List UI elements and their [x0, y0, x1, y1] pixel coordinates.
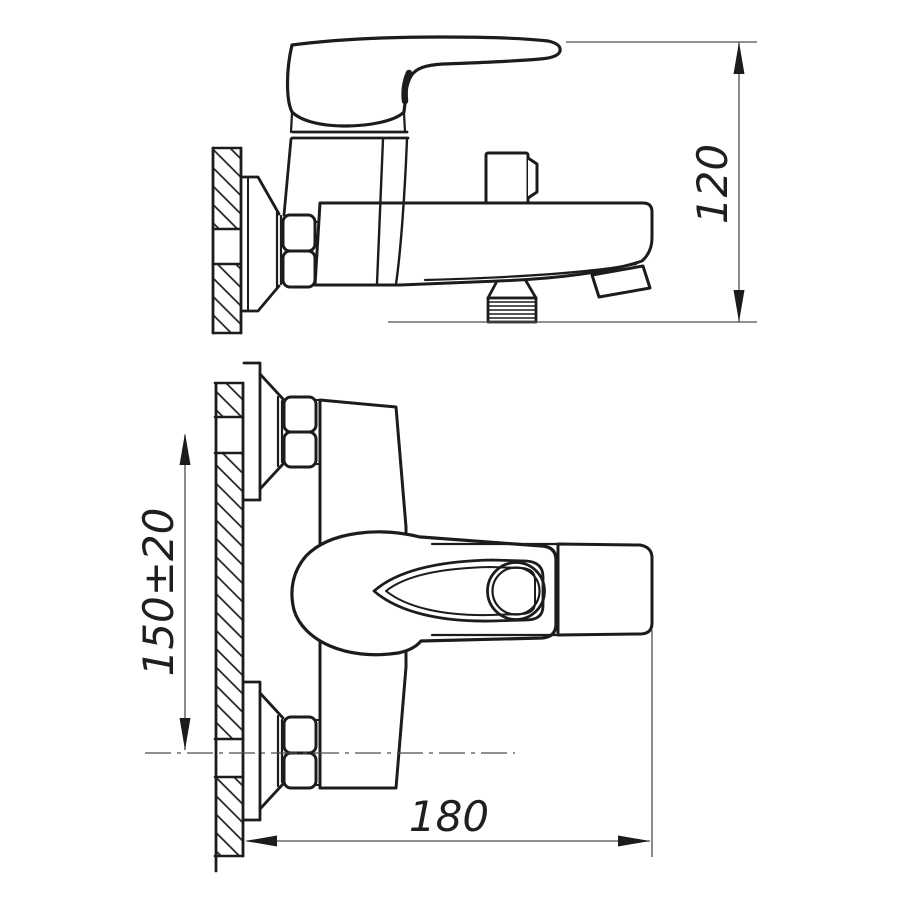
arrowhead-up — [180, 433, 191, 465]
spout-plan — [558, 544, 652, 635]
diverter-knob — [486, 153, 537, 203]
mixer-body-side — [315, 139, 652, 285]
lever-pivot-notch — [405, 73, 409, 101]
handle-lever-plan — [292, 532, 556, 655]
upper-connection — [244, 363, 320, 500]
arrowhead-left — [245, 836, 277, 847]
cartridge-neck — [284, 113, 408, 215]
arrowhead-right — [618, 836, 650, 847]
arrowhead-up — [734, 42, 745, 74]
arrowhead-down — [734, 290, 745, 322]
shower-outlet — [488, 281, 536, 322]
wall-hatch-side — [212, 148, 242, 333]
dim-height-label: 120 — [688, 144, 737, 224]
side-view — [212, 37, 652, 333]
arrowhead-down — [180, 718, 191, 750]
bath-mixer-installation-drawing: 120 150±20 180 — [0, 0, 900, 900]
lower-connection — [244, 682, 320, 820]
technical-drawing-page: 120 150±20 180 — [0, 0, 900, 900]
wall-flange-side — [243, 177, 281, 311]
dim-spacing-label: 150±20 — [134, 508, 183, 677]
wall-hatch-plan — [214, 383, 244, 871]
dim-length-label: 180 — [409, 792, 489, 841]
handle-lever-side — [288, 37, 561, 126]
